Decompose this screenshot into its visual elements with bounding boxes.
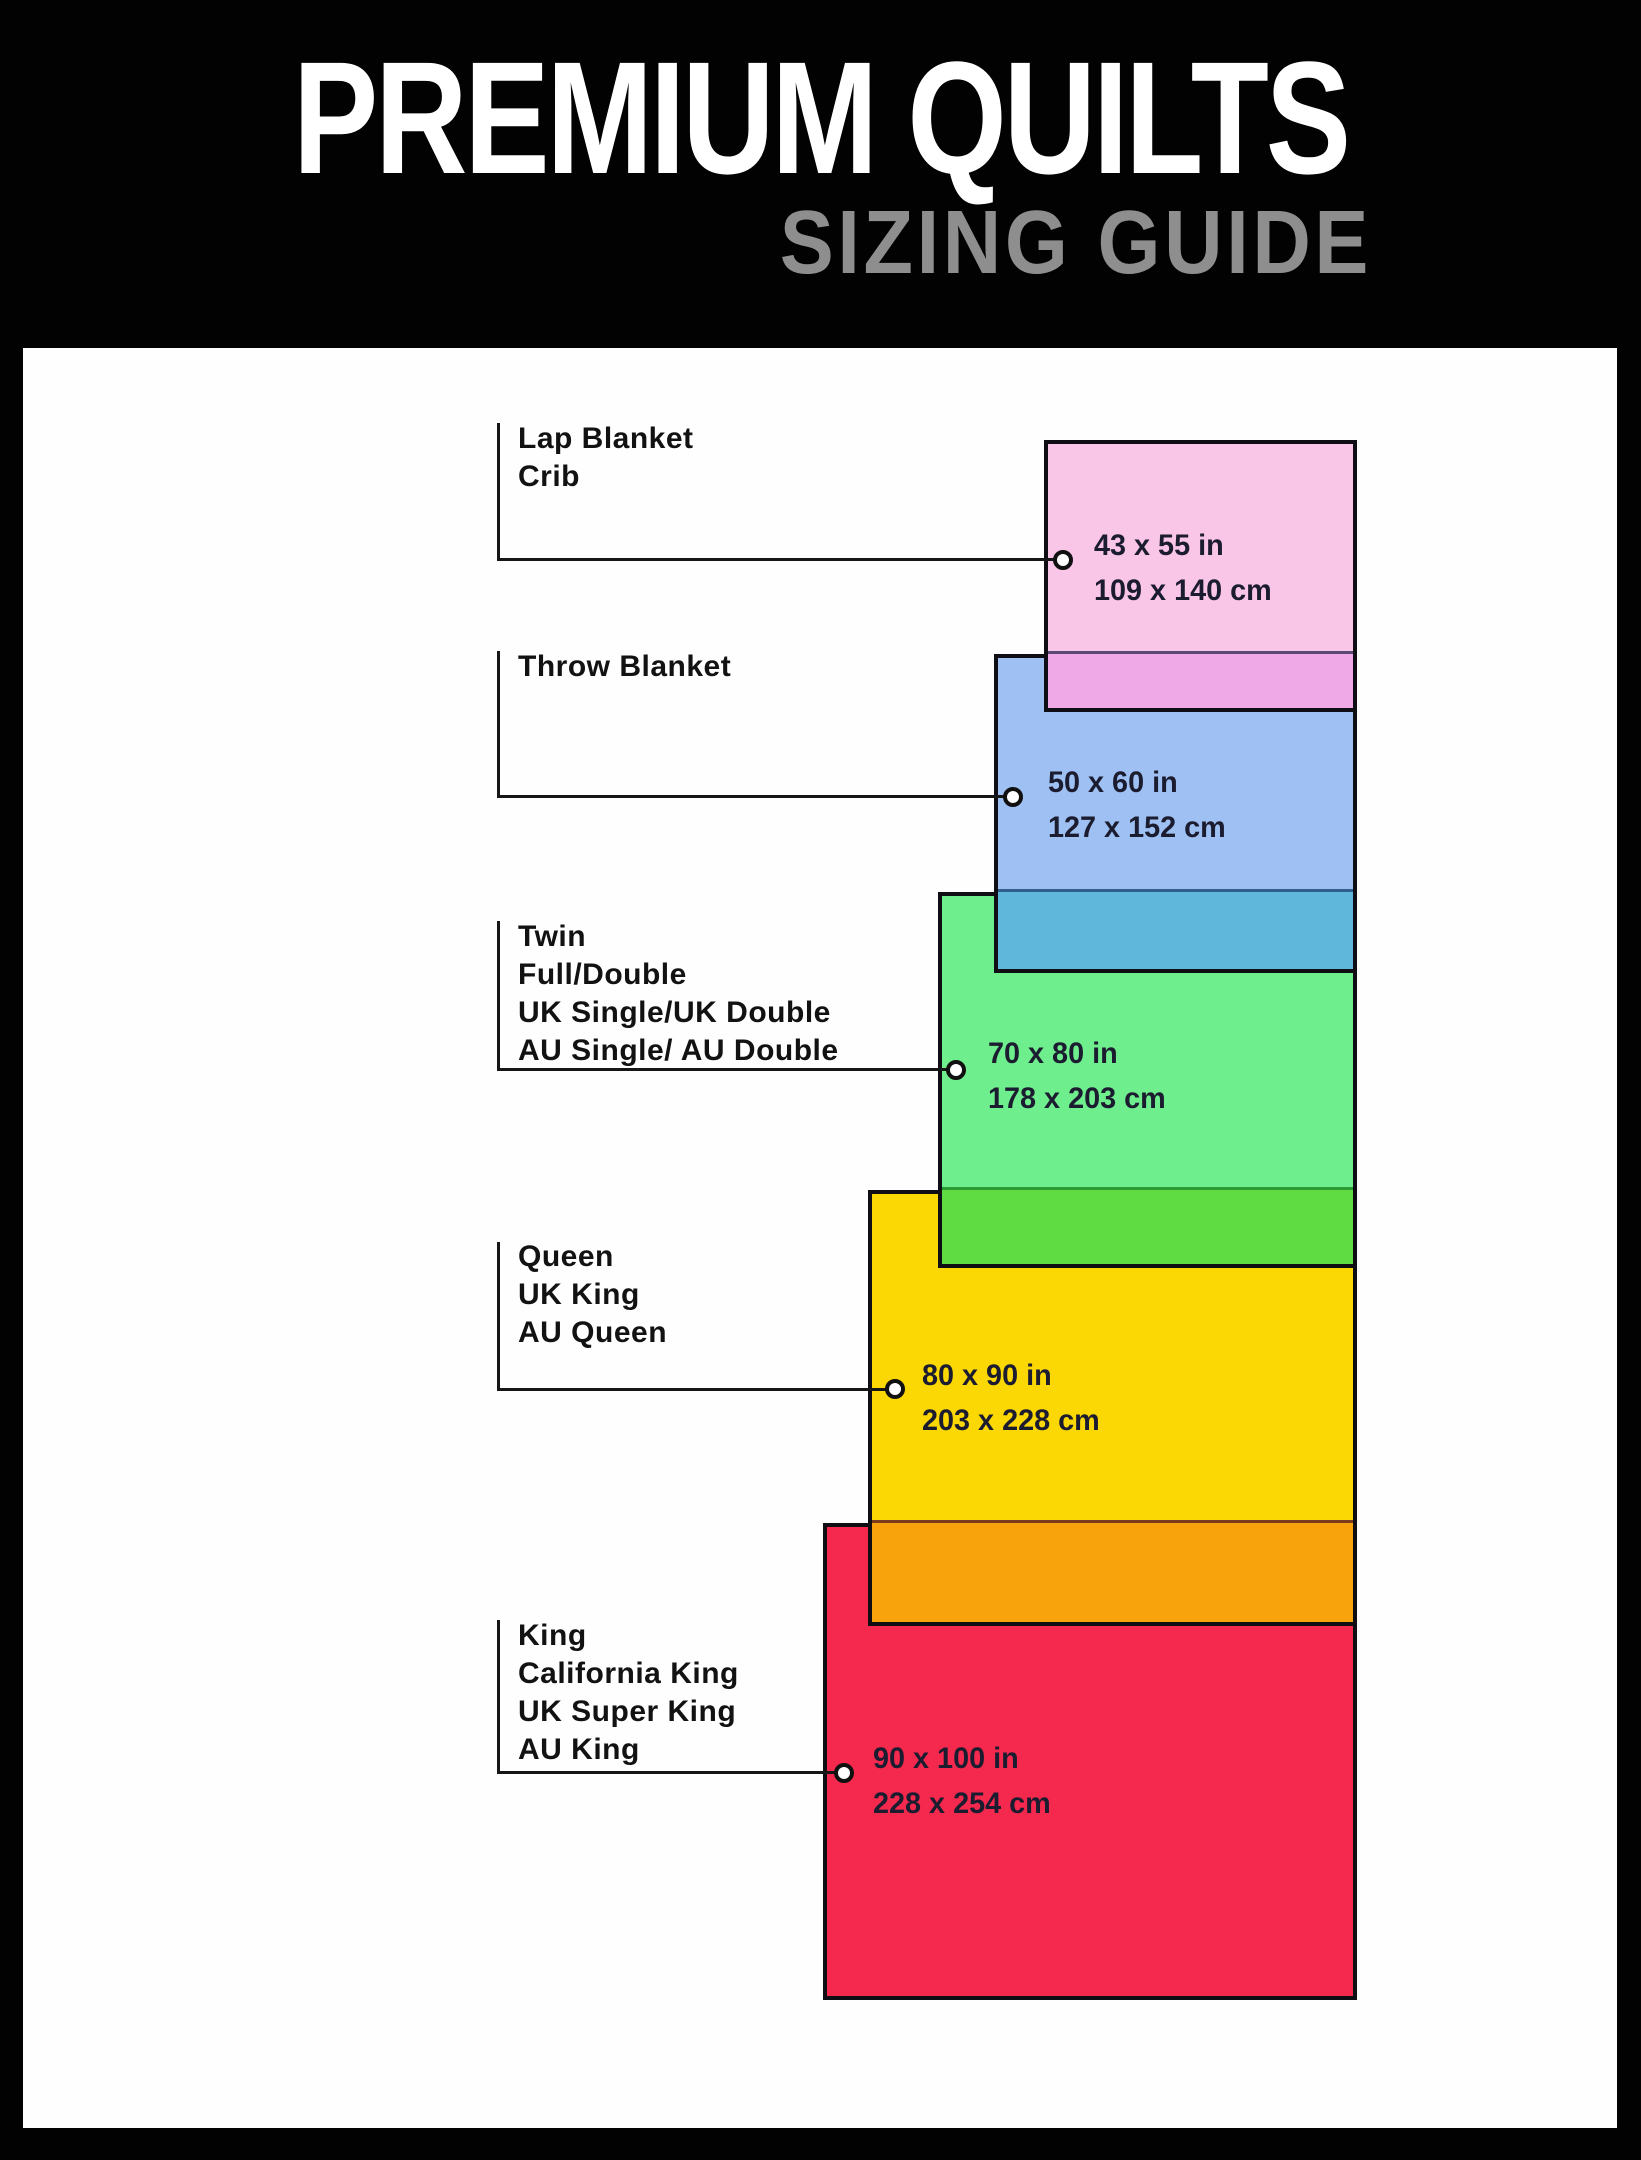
leader-tick-king [497,1620,500,1773]
label-twin-full-double: Twin Full/Double UK Single/UK Double AU … [518,918,839,1070]
page-subtitle-text: SIZING GUIDE [780,198,1372,288]
label-lap-blanket-crib: Lap Blanket Crib [518,420,694,496]
label-queen: Queen UK King AU Queen [518,1238,667,1352]
size-inches: 50 x 60 in [1048,760,1226,805]
leader-line-twin [497,1068,956,1071]
label-line: UK King [518,1276,667,1314]
overlap-band-throw-over-twin [998,889,1353,969]
label-line: California King [518,1655,739,1693]
leader-dot-twin [946,1060,966,1080]
label-line: Twin [518,918,839,956]
size-label-lap: 43 x 55 in 109 x 140 cm [1094,523,1272,613]
label-throw-blanket: Throw Blanket [518,648,731,686]
page-title: PREMIUM QUILTS [0,38,1641,198]
leader-dot-queen [885,1379,905,1399]
size-label-throw: 50 x 60 in 127 x 152 cm [1048,760,1226,850]
content-panel [23,348,1617,2128]
label-king: King California King UK Super King AU Ki… [518,1617,739,1769]
leader-tick-twin [497,921,500,1069]
size-label-queen: 80 x 90 in 203 x 228 cm [922,1353,1100,1443]
label-line: Throw Blanket [518,648,731,686]
size-centimeters: 203 x 228 cm [922,1398,1100,1443]
size-inches: 90 x 100 in [873,1736,1051,1781]
leader-tick-lap [497,423,500,561]
size-centimeters: 228 x 254 cm [873,1781,1051,1826]
label-line: Queen [518,1238,667,1276]
size-centimeters: 178 x 203 cm [988,1076,1166,1121]
size-centimeters: 109 x 140 cm [1094,568,1272,613]
size-inches: 70 x 80 in [988,1031,1166,1076]
header: PREMIUM QUILTS SIZING GUIDE [0,0,1641,348]
leader-line-lap [497,558,1063,561]
leader-dot-king [834,1763,854,1783]
infographic-page: PREMIUM QUILTS SIZING GUIDE Lap Blanket … [0,0,1641,2160]
leader-line-king [497,1771,844,1774]
size-label-twin: 70 x 80 in 178 x 203 cm [988,1031,1166,1121]
size-centimeters: 127 x 152 cm [1048,805,1226,850]
label-line: AU King [518,1731,739,1769]
size-label-king: 90 x 100 in 228 x 254 cm [873,1736,1051,1826]
label-line: UK Single/UK Double [518,994,839,1032]
label-line: Lap Blanket [518,420,694,458]
page-title-text: PREMIUM QUILTS [293,38,1348,198]
leader-dot-lap [1053,550,1073,570]
leader-line-throw [497,795,1013,798]
leader-line-queen [497,1388,895,1391]
overlap-band-queen-over-king [872,1520,1353,1622]
size-inches: 80 x 90 in [922,1353,1100,1398]
overlap-band-lap-over-throw [1048,651,1353,708]
size-inches: 43 x 55 in [1094,523,1272,568]
label-line: Crib [518,458,694,496]
overlap-band-twin-over-queen [942,1187,1353,1264]
leader-tick-queen [497,1242,500,1391]
label-line: AU Single/ AU Double [518,1032,839,1070]
page-subtitle: SIZING GUIDE [714,198,1372,288]
label-line: UK Super King [518,1693,739,1731]
label-line: AU Queen [518,1314,667,1352]
label-line: King [518,1617,739,1655]
label-line: Full/Double [518,956,839,994]
leader-dot-throw [1003,787,1023,807]
leader-tick-throw [497,651,500,798]
